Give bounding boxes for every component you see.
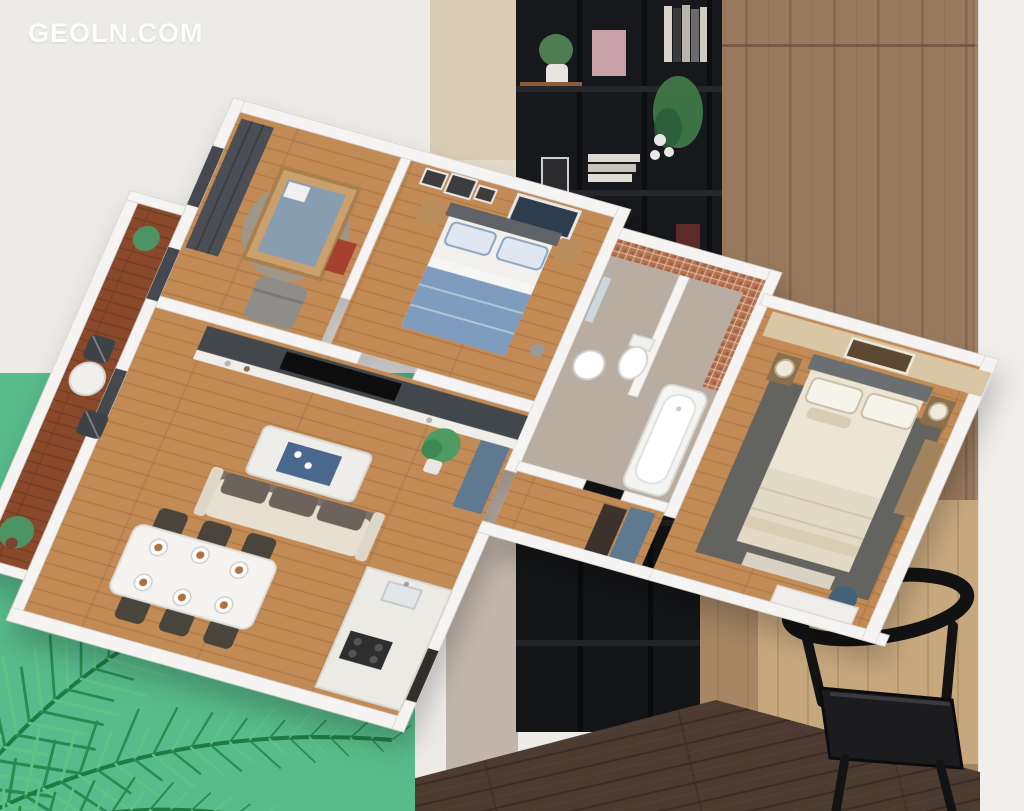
potted-plant xyxy=(539,34,573,66)
books-vertical xyxy=(664,5,707,62)
pink-box xyxy=(592,30,626,76)
watermark: GEOLN.COM xyxy=(28,18,204,49)
wood-shelf-board xyxy=(520,82,582,86)
promo-image: GEOLN.COM xyxy=(0,0,1024,811)
scene-canvas xyxy=(0,0,1024,811)
right-white-wall xyxy=(978,0,1024,811)
